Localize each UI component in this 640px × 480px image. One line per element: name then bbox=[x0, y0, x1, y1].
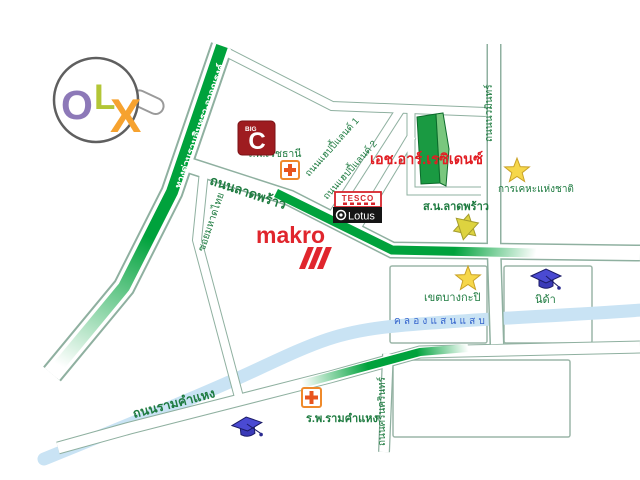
map-canvas: ทางด่วนรามอินทรา-อาจณรงค์ ถนนลาดพร้าว ซอ… bbox=[0, 0, 640, 480]
nida-label: นิด้า bbox=[535, 294, 556, 306]
srinakarin-label: ถนนศรีนครินทร์ bbox=[376, 376, 388, 446]
ramkhamhaeng-hospital-label: ร.พ.รามคำแหง bbox=[306, 412, 378, 425]
olx-letter-o: O bbox=[61, 82, 93, 128]
ramkhamhaeng-hospital-icon bbox=[302, 388, 321, 407]
police-star-icon bbox=[452, 212, 480, 242]
tesco-text: TESCO bbox=[342, 194, 375, 203]
hr-residence-building bbox=[417, 113, 449, 186]
bigc-c-text: C bbox=[248, 128, 265, 155]
lotus-text: Lotus bbox=[348, 211, 375, 223]
map-image: ทางด่วนรามอินทรา-อาจณรงค์ ถนนลาดพร้าว ซอ… bbox=[0, 0, 640, 480]
block-southeast bbox=[393, 360, 570, 437]
vejthani-hospital-icon bbox=[281, 161, 299, 179]
bigc-icon: BIG C bbox=[238, 121, 275, 155]
tesco-icon: TESCO bbox=[335, 192, 381, 207]
makro-label: makro bbox=[256, 222, 325, 248]
lotus-icon: Lotus bbox=[333, 207, 382, 223]
ram-university-cap-icon bbox=[231, 415, 263, 439]
makro-m-icon bbox=[299, 247, 332, 269]
bangkapi-label: เขตบางกะปิ bbox=[424, 292, 481, 304]
olx-letter-x: X bbox=[110, 89, 141, 142]
police-station-label: ส.น.ลาดพร้าว bbox=[423, 200, 489, 213]
national-housing-label: การเคหะแห่งชาติ bbox=[498, 184, 574, 195]
housing-star-icon bbox=[505, 158, 530, 182]
hr-residence-label: เอช.อาร์.เรซิเดนซ์ bbox=[370, 150, 483, 168]
canal-label: คลองแสนแสบ bbox=[394, 316, 488, 327]
olx-watermark: O L X bbox=[54, 58, 166, 142]
nawamin-label: ถนนนวมินทร์ bbox=[483, 84, 495, 142]
